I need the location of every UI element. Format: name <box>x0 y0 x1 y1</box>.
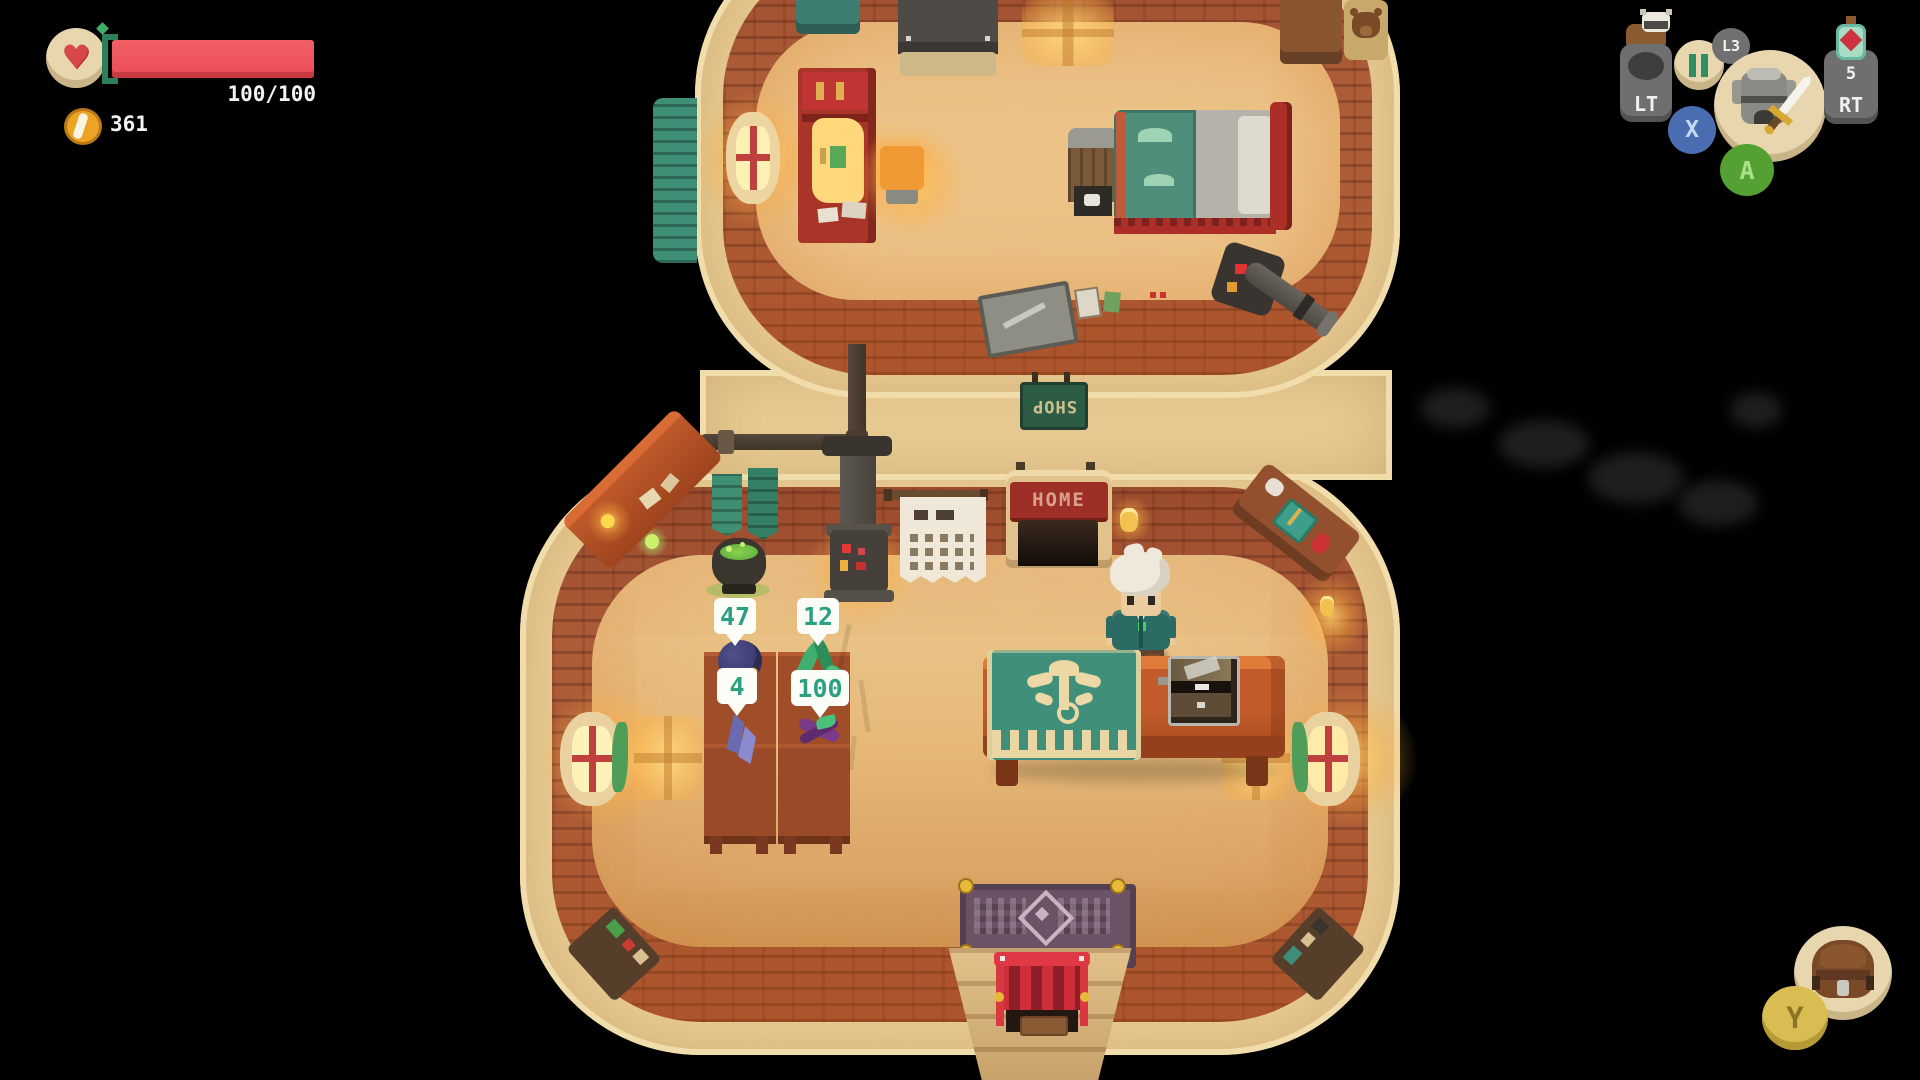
player-vest <box>1112 610 1170 650</box>
quilt-stripe <box>1116 112 1126 220</box>
wall-picture <box>1074 286 1102 319</box>
skull-item <box>1262 475 1286 499</box>
stove-pipe-vertical <box>848 344 866 440</box>
cash-register[interactable] <box>1168 656 1240 726</box>
lamp-shade <box>880 146 924 190</box>
shop-round-window-left <box>560 712 624 806</box>
chest-cross <box>1287 508 1302 526</box>
quilt-wave <box>1138 128 1172 142</box>
paper-scrap <box>817 207 838 223</box>
x-button[interactable]: X <box>1668 106 1716 154</box>
shop-sign: SHOP <box>1020 382 1088 430</box>
red-bookcase[interactable] <box>798 68 876 243</box>
lt-button[interactable]: LT <box>1620 44 1672 122</box>
counter-rug <box>987 650 1141 760</box>
health-bar <box>112 40 314 78</box>
cauldron-bubble <box>740 542 745 547</box>
backpack-flap <box>1820 944 1866 968</box>
game-scene: SHOP <box>0 0 1920 1080</box>
hanging-scroll <box>884 488 988 586</box>
rug-medallion-ring <box>1057 702 1079 724</box>
home-door[interactable]: HOME <box>1006 462 1112 568</box>
smoke-puff <box>1588 452 1684 504</box>
counter-shadow <box>991 758 1279 782</box>
poster-glyph <box>820 148 826 164</box>
cabinet-lamp <box>598 511 618 531</box>
rug-pin <box>958 878 974 894</box>
rug-fringe-band <box>992 730 1136 750</box>
register-crank <box>1158 677 1168 685</box>
poster-glyph <box>830 146 846 168</box>
scroll-row <box>910 548 974 556</box>
bear-snout <box>1360 26 1372 36</box>
telescope[interactable] <box>1205 238 1355 348</box>
player-eye <box>1127 596 1134 605</box>
player-character[interactable] <box>1104 544 1178 666</box>
telescope-light-amber <box>1227 282 1237 292</box>
window-cross-v <box>589 726 596 792</box>
home-sign-text: HOME <box>1032 489 1086 511</box>
storage-chest[interactable] <box>1068 128 1118 220</box>
companion-horn <box>1640 9 1646 15</box>
register-slot <box>1195 684 1209 690</box>
bed-frame-bottom <box>1114 218 1276 234</box>
red-lantern-item <box>1308 531 1333 557</box>
bed-quilt <box>1114 110 1196 222</box>
smoke-puff <box>1730 392 1782 428</box>
rug-medallion-hook <box>1034 691 1054 707</box>
armor-rim <box>1747 68 1781 80</box>
shop-sign-text: SHOP <box>1032 396 1077 416</box>
wall-picture <box>1103 291 1121 312</box>
home-banner: HOME <box>1010 482 1108 522</box>
door-mat <box>900 52 996 76</box>
gold-amount: 361 <box>110 112 190 136</box>
scroll-paper <box>900 497 986 583</box>
wall-lamp <box>1320 596 1334 616</box>
scroll-rod-cap <box>884 489 892 501</box>
stove-lid <box>822 436 892 456</box>
pause-icon <box>1689 54 1696 77</box>
window-cross-v <box>1325 726 1332 792</box>
shelf-item-green <box>606 919 626 939</box>
slot-glyph <box>1084 194 1100 206</box>
window-vine <box>612 722 628 792</box>
bedroom-top-door[interactable] <box>898 0 998 54</box>
item-blue-crystal[interactable] <box>720 712 762 768</box>
home-lantern <box>1120 508 1138 532</box>
lt-socket <box>1628 52 1664 80</box>
counter-leg <box>1246 756 1268 786</box>
shelf-item-pot <box>1311 917 1329 935</box>
coin-stripe <box>72 112 89 140</box>
price-tag: 100 <box>791 670 849 706</box>
chest-lid <box>1068 128 1118 150</box>
shelf-item-red <box>622 938 636 952</box>
awning-knob <box>1080 992 1090 1002</box>
awning-top-bar <box>994 952 1090 966</box>
shelf-item-teal <box>1283 945 1303 965</box>
table-leg <box>830 836 842 854</box>
cabinet-paper <box>660 473 679 493</box>
corner-cabinet <box>1280 0 1342 64</box>
rug-medallion-top <box>1049 660 1079 676</box>
sign-mark <box>816 82 824 100</box>
stove-ember <box>858 548 865 555</box>
bed-headboard <box>1270 102 1292 230</box>
sign-mark <box>836 82 844 100</box>
stove-ember <box>856 562 866 570</box>
rug-pin <box>1110 878 1126 894</box>
heart-icon: ♥ <box>64 38 88 78</box>
outside-green-awning <box>653 98 697 263</box>
paper-scrap <box>841 201 866 219</box>
stove-base <box>830 530 888 592</box>
quilt-wave <box>1144 174 1174 186</box>
cauldron[interactable] <box>706 536 772 600</box>
counter-leg <box>996 756 1018 786</box>
smoke-puff <box>1498 420 1590 468</box>
awning-canopy <box>998 964 1086 1010</box>
awning-dot <box>1000 956 1005 961</box>
backpack-icon <box>1812 940 1874 1006</box>
shelf-item-beige <box>632 948 649 965</box>
lamp-base <box>886 190 918 204</box>
rug-medallion-wing <box>1026 671 1054 689</box>
smoke-puff <box>1678 480 1758 526</box>
table-leg <box>784 836 796 854</box>
backpack-buckle <box>1866 976 1874 990</box>
backpack-buckle <box>1812 976 1820 990</box>
table-leg <box>756 836 768 854</box>
chest-slot <box>1074 186 1112 216</box>
register-drawer <box>1171 693 1231 717</box>
shop-entrance-awning[interactable] <box>994 952 1090 1032</box>
teal-cabinet <box>796 0 860 34</box>
stove-ember <box>842 544 851 553</box>
shop-round-window-right <box>1296 712 1360 806</box>
health-heart-circle: ♥ <box>46 28 106 88</box>
bed-pillow <box>1238 116 1272 214</box>
price-tag: 4 <box>717 668 757 704</box>
bed[interactable] <box>1114 104 1294 236</box>
window-vine <box>1292 722 1308 792</box>
awning-knob <box>994 992 1004 1002</box>
green-tapestry <box>748 468 778 540</box>
door-hinge <box>906 36 911 41</box>
cabinet-top-lip <box>561 408 681 528</box>
window-cross-v <box>750 126 757 190</box>
rt-label: RT <box>1824 92 1878 118</box>
health-bar-leaf <box>96 22 109 35</box>
sword-blade <box>1778 73 1815 116</box>
bookcase-top-sign <box>802 72 868 110</box>
rug-medallion-wing <box>1074 671 1102 689</box>
awning-mat <box>1020 1016 1068 1036</box>
equipped-item-circle[interactable] <box>1714 50 1826 162</box>
cabinet-paper <box>639 488 662 510</box>
teal-chest-item <box>1271 497 1319 544</box>
doormat-scratch <box>1003 302 1046 329</box>
cauldron-bubble <box>726 546 732 552</box>
bear-ear <box>1350 8 1358 16</box>
backpack-clasp <box>1837 980 1849 996</box>
shelf-item-beige <box>1300 932 1315 948</box>
bear-ear <box>1374 8 1382 16</box>
door-hinge <box>985 36 990 41</box>
shop-counter[interactable] <box>983 650 1285 790</box>
orange-lamp <box>880 146 924 206</box>
scroll-row <box>910 534 974 542</box>
backpack-strap <box>1816 970 1870 980</box>
rug-fringe-lip <box>992 750 1136 758</box>
pipe-coupling <box>718 430 734 454</box>
price-tag: 12 <box>797 598 839 634</box>
table-shelf-bottom <box>778 744 850 844</box>
bedroom-round-window <box>726 112 780 204</box>
floor-item-dot <box>1150 292 1156 298</box>
companion-horn <box>1666 9 1672 15</box>
table-leg <box>710 836 722 854</box>
lt-label: LT <box>1620 90 1672 118</box>
price-tag: 47 <box>714 598 756 634</box>
scroll-row <box>910 562 974 570</box>
a-button[interactable]: A <box>1720 144 1774 196</box>
companion-goggles <box>1644 21 1668 29</box>
drawer-knob <box>1197 702 1205 708</box>
glowing-poster <box>812 118 864 203</box>
smoke-puff <box>1420 388 1490 428</box>
scroll-glyph <box>914 510 928 520</box>
y-button[interactable]: Y <box>1762 986 1828 1050</box>
home-opening <box>1018 520 1098 566</box>
rug-medallion-hook <box>1074 691 1094 707</box>
stove-ember <box>840 560 848 571</box>
cauldron-base <box>722 584 756 594</box>
potion-icon <box>1836 16 1866 64</box>
item-purple-bird[interactable] <box>794 714 844 758</box>
trophy-plaque <box>1344 0 1388 60</box>
health-value: 100/100 <box>200 82 316 106</box>
awning-dot <box>1079 956 1084 961</box>
pause-icon <box>1701 54 1708 77</box>
rt-potion-count: 5 <box>1824 64 1878 84</box>
floor-item-dot <box>1160 292 1166 298</box>
coin-icon <box>64 108 102 145</box>
player-eye <box>1148 596 1155 605</box>
scroll-glyph <box>936 510 954 520</box>
stove-neck <box>840 456 876 532</box>
